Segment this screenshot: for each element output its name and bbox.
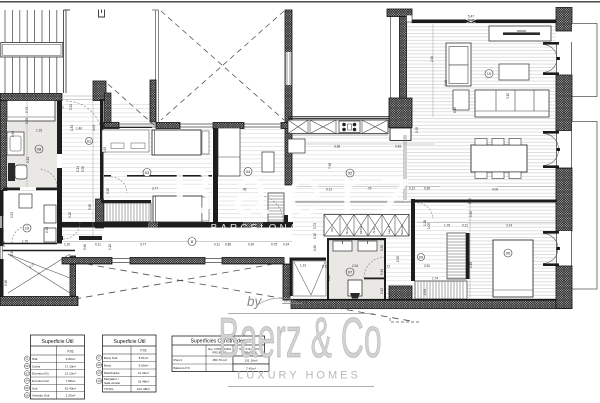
svg-text:3.77: 3.77 <box>140 243 146 247</box>
svg-text:Superficie Útil: Superficie Útil <box>113 338 145 345</box>
svg-text:Cuina: Cuina <box>32 364 40 368</box>
svg-text:0.83: 0.83 <box>395 145 401 149</box>
svg-text:0.80: 0.80 <box>225 243 231 247</box>
svg-text:3.10: 3.10 <box>506 93 510 99</box>
svg-text:1.20: 1.20 <box>64 243 70 247</box>
svg-text:Dormitori 02: Dormitori 02 <box>32 379 49 383</box>
svg-text:12.12m²: 12.12m² <box>65 372 76 376</box>
svg-text:1.53: 1.53 <box>10 212 14 218</box>
svg-text:P.02: P.02 <box>140 349 146 353</box>
svg-text:20: 20 <box>60 106 64 110</box>
svg-text:5.61m²: 5.61m² <box>139 356 149 360</box>
svg-text:Bany: Bany <box>104 364 112 368</box>
svg-text:0.11: 0.11 <box>462 224 468 228</box>
svg-text:1.15: 1.15 <box>36 129 42 133</box>
svg-text:Balcons P.3: Balcons P.3 <box>174 366 190 370</box>
svg-text:0.11: 0.11 <box>95 243 101 247</box>
svg-text:10: 10 <box>487 71 492 76</box>
svg-text:1.82: 1.82 <box>70 125 74 131</box>
svg-text:2.25m²: 2.25m² <box>66 394 76 398</box>
svg-text:0.11: 0.11 <box>322 265 328 269</box>
svg-text:3.38: 3.38 <box>334 145 340 149</box>
svg-text:101.38m²: 101.38m² <box>137 387 150 391</box>
svg-text:07: 07 <box>97 356 101 360</box>
svg-text:1.12: 1.12 <box>300 264 306 268</box>
svg-text:0.56: 0.56 <box>380 245 384 251</box>
svg-text:04: 04 <box>25 379 29 383</box>
svg-text:3.99: 3.99 <box>444 80 448 86</box>
svg-text:Suit: Suit <box>32 386 37 390</box>
svg-text:1.70: 1.70 <box>22 240 28 244</box>
svg-text:0.56: 0.56 <box>81 166 85 172</box>
svg-text:0.90: 0.90 <box>88 204 92 210</box>
svg-text:0.22: 0.22 <box>69 104 73 110</box>
svg-text:2.24: 2.24 <box>26 157 30 163</box>
svg-text:31.48m²: 31.48m² <box>138 380 149 384</box>
svg-text:8.10: 8.10 <box>453 107 457 113</box>
svg-text:0.90: 0.90 <box>248 243 254 247</box>
svg-text:0.96: 0.96 <box>4 280 8 286</box>
svg-text:10: 10 <box>25 226 30 231</box>
svg-text:Hall: Hall <box>32 357 38 361</box>
svg-text:3.20: 3.20 <box>68 212 72 218</box>
svg-text:Superficie Útil: Superficie Útil <box>41 338 73 345</box>
svg-text:0.96: 0.96 <box>83 244 87 250</box>
svg-text:2.28: 2.28 <box>45 227 49 233</box>
svg-text:4.00: 4.00 <box>492 188 498 192</box>
svg-text:10: 10 <box>97 379 101 383</box>
svg-text:1.23: 1.23 <box>327 275 331 281</box>
svg-text:03: 03 <box>145 170 150 175</box>
svg-text:1.63: 1.63 <box>103 147 107 153</box>
svg-text:5.00m²: 5.00m² <box>139 364 149 368</box>
svg-text:01: 01 <box>25 357 29 361</box>
svg-text:0.11: 0.11 <box>468 198 472 204</box>
svg-text:5.47: 5.47 <box>468 15 474 19</box>
svg-text:Distribuidor: Distribuidor <box>104 371 120 375</box>
svg-text:0.55: 0.55 <box>25 118 29 124</box>
svg-text:0.62: 0.62 <box>380 288 384 294</box>
svg-text:Vestidor Suit: Vestidor Suit <box>32 394 50 398</box>
svg-text:02: 02 <box>25 364 29 368</box>
svg-text:05: 05 <box>506 251 511 256</box>
svg-text:09: 09 <box>97 371 101 375</box>
svg-text:10.43m²: 10.43m² <box>65 386 76 390</box>
svg-text:1.50: 1.50 <box>396 256 400 262</box>
svg-text:-0.83: -0.83 <box>423 289 427 296</box>
svg-text:07: 07 <box>348 270 353 275</box>
svg-text:1.40: 1.40 <box>76 127 82 131</box>
svg-text:08: 08 <box>97 363 101 367</box>
svg-text:0.94: 0.94 <box>380 269 384 275</box>
svg-text:0.90: 0.90 <box>106 188 110 194</box>
svg-text:0.11: 0.11 <box>214 243 220 247</box>
svg-text:1.11: 1.11 <box>108 244 112 250</box>
svg-text:3.14: 3.14 <box>506 224 512 228</box>
svg-text:0.35: 0.35 <box>415 127 419 133</box>
svg-text:2.10: 2.10 <box>2 241 6 247</box>
svg-text:17.10m²: 17.10m² <box>65 364 76 368</box>
svg-text:2.80m²: 2.80m² <box>66 357 76 361</box>
svg-text:09: 09 <box>419 256 423 260</box>
svg-text:2.04: 2.04 <box>92 125 96 131</box>
svg-text:1.75: 1.75 <box>444 224 450 228</box>
svg-text:01: 01 <box>87 140 91 144</box>
svg-text:08: 08 <box>37 147 42 152</box>
svg-text:0.60: 0.60 <box>11 131 15 137</box>
svg-text:0.10: 0.10 <box>313 233 317 239</box>
svg-text:7.88m²: 7.88m² <box>66 379 76 383</box>
svg-text:03: 03 <box>25 371 29 375</box>
svg-text:Bany Suit: Bany Suit <box>104 356 117 360</box>
svg-text:LUXURY HOMES: LUXURY HOMES <box>237 370 361 382</box>
svg-text:11.34m²: 11.34m² <box>138 371 149 375</box>
svg-text:BAUHAUS: BAUHAUS <box>284 300 297 304</box>
svg-text:0.75: 0.75 <box>271 243 277 247</box>
svg-text:0.72: 0.72 <box>384 265 390 269</box>
svg-text:2.04: 2.04 <box>352 264 358 268</box>
svg-text:Baerz & Co: Baerz & Co <box>218 305 381 369</box>
svg-text:Baerz: Baerz <box>171 154 428 228</box>
svg-text:0.14: 0.14 <box>76 166 80 172</box>
svg-text:2.66: 2.66 <box>430 56 434 62</box>
svg-text:2.48: 2.48 <box>469 262 473 268</box>
svg-text:Plan 2: Plan 2 <box>174 358 183 362</box>
svg-text:06: 06 <box>25 393 29 397</box>
svg-text:P.02: P.02 <box>67 350 73 354</box>
svg-text:Dormitori 01: Dormitori 01 <box>32 372 49 376</box>
svg-text:BARCELONA: BARCELONA <box>211 223 300 234</box>
svg-text:0.24: 0.24 <box>283 243 289 247</box>
svg-text:0.60: 0.60 <box>469 211 473 217</box>
svg-text:0.73: 0.73 <box>25 107 29 113</box>
svg-text:1.74: 1.74 <box>432 277 438 281</box>
svg-text:TOTAL: TOTAL <box>104 387 114 391</box>
svg-text:0.66: 0.66 <box>313 245 317 251</box>
svg-text:2.61: 2.61 <box>424 264 430 268</box>
svg-text:05: 05 <box>25 386 29 390</box>
svg-text:0.90: 0.90 <box>10 250 14 256</box>
svg-text:Sala d'estar: Sala d'estar <box>104 381 120 385</box>
svg-text:3.77: 3.77 <box>152 187 158 191</box>
